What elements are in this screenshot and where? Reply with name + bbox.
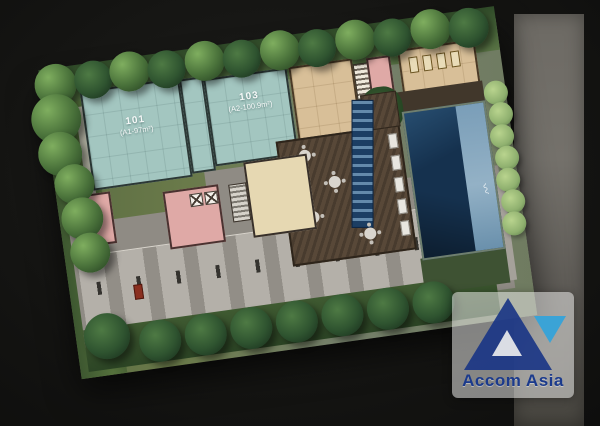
- elevator-lobby: [163, 184, 227, 249]
- logo-accent-triangle-icon: [534, 316, 566, 343]
- lounge-chair-icon: [391, 155, 402, 171]
- treadmill-icon: [408, 56, 419, 73]
- brand-watermark: Accom Asia: [452, 292, 574, 398]
- treadmill-icon: [450, 50, 461, 67]
- lobby: [243, 154, 317, 238]
- brand-wordmark: Accom Asia: [452, 371, 574, 391]
- floor-plan-image: 101 (A1-97m²) 103 (A2-100.9m²) ♟♟♟♟♟: [0, 0, 600, 426]
- lounge-chair-icon: [388, 133, 399, 149]
- treadmill-icon: [422, 54, 433, 71]
- water-feature: [352, 100, 374, 228]
- lounge-chair-icon: [397, 198, 408, 214]
- treadmill-icon: [436, 52, 447, 69]
- lounge-chair-icon: [394, 176, 405, 192]
- logo-triangle-counter-icon: [492, 330, 522, 356]
- parked-vehicle: [133, 284, 144, 300]
- elevator-shaft-icon: [204, 190, 219, 205]
- lounge-chair-icon: [400, 220, 411, 236]
- elevator-shaft-icon: [189, 193, 204, 208]
